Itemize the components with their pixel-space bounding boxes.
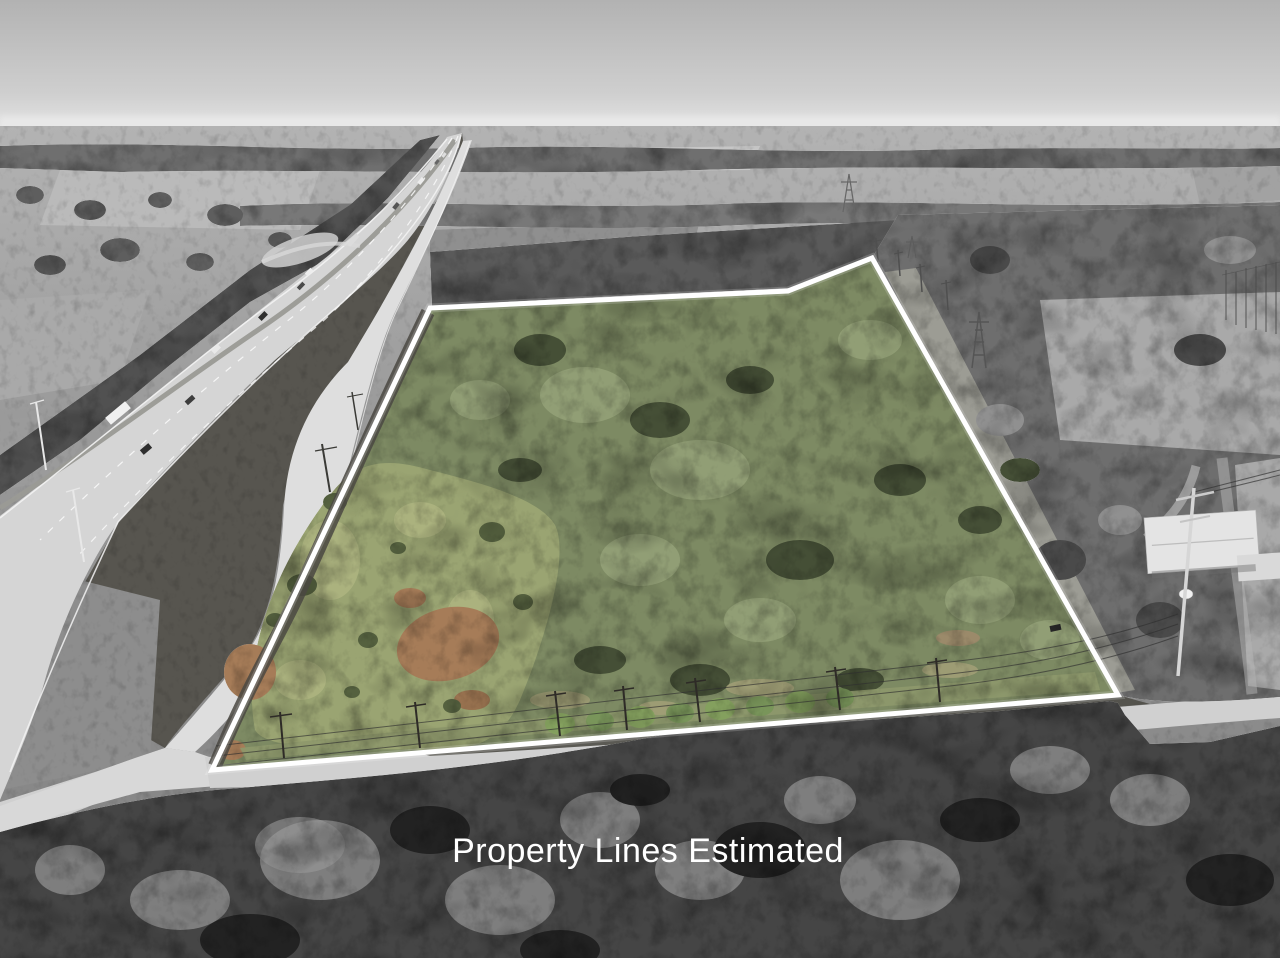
sky — [0, 0, 1280, 134]
photo-canvas: Property Lines Estimated — [0, 0, 1280, 958]
caption-text: Property Lines Estimated — [452, 832, 844, 870]
aerial-property-photo: Property Lines Estimated — [0, 0, 1280, 958]
distant-treeline — [0, 144, 1280, 172]
field-patch-right — [1040, 292, 1280, 455]
